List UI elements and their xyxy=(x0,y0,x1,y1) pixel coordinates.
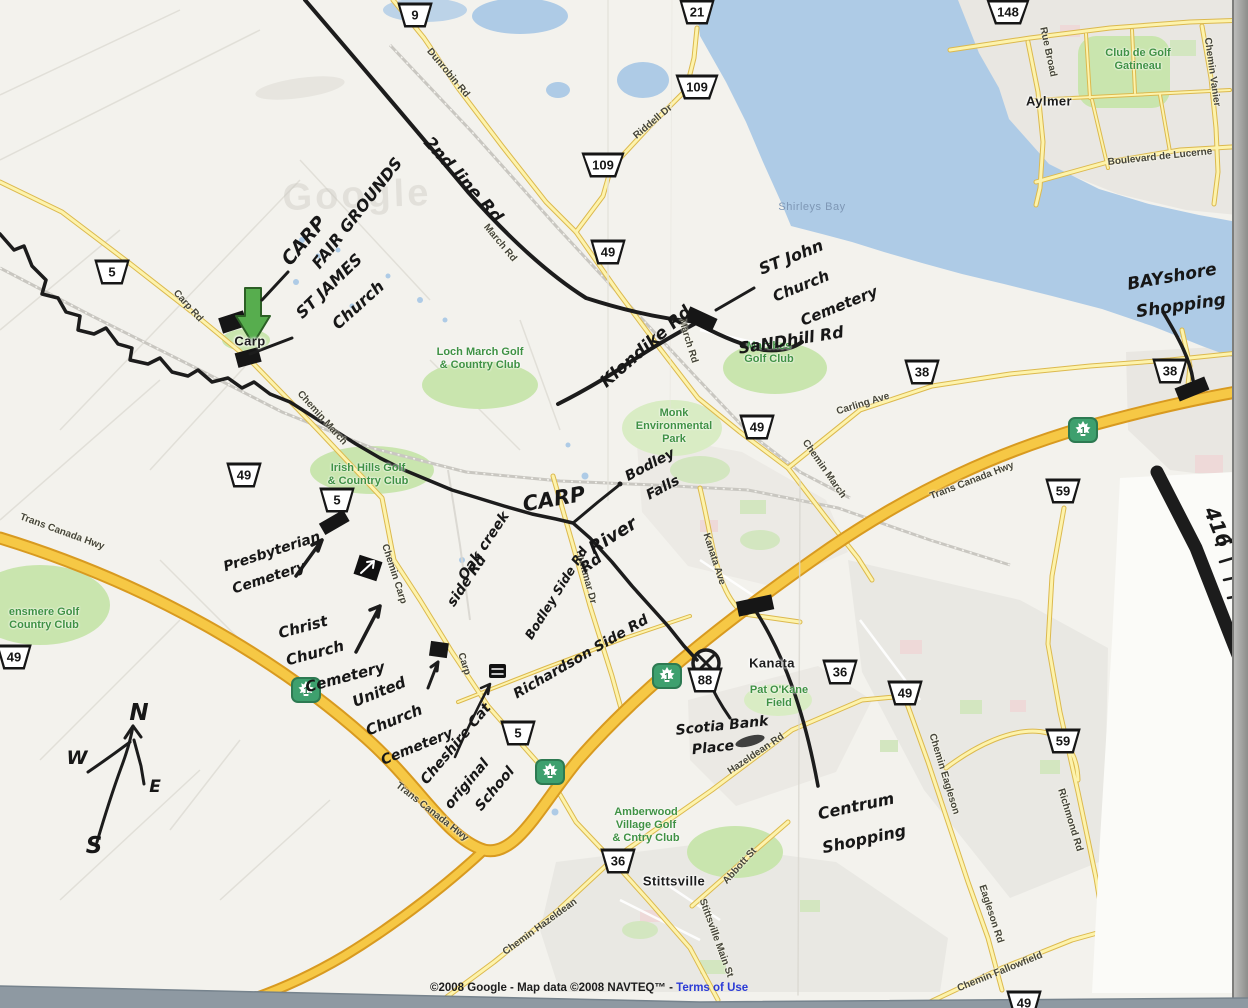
maple-leaf-icon: 1 xyxy=(1070,419,1096,441)
shield-number: 5 xyxy=(319,488,356,513)
road-label: Boulevard de Lucerne xyxy=(1107,146,1213,168)
handwritten-annotation: Place xyxy=(691,738,735,758)
route-shield-5: 5 xyxy=(500,721,537,746)
water-label: Shirleys Bay xyxy=(778,201,845,213)
route-shield-148: 148 xyxy=(986,0,1031,25)
handwritten-annotation: Shopping xyxy=(1135,290,1227,322)
road-label: Chemin Hazeldean xyxy=(501,896,579,957)
route-shield-49: 49 xyxy=(226,463,263,488)
marker-number: 1 xyxy=(547,768,553,779)
golf-park-label: Park xyxy=(662,433,686,445)
route-shield-5: 5 xyxy=(94,260,131,285)
shield-number: 49 xyxy=(887,681,924,706)
maple-leaf-icon: 1 xyxy=(537,761,563,783)
route-shield-109: 109 xyxy=(581,153,626,178)
handwritten-annotation: E xyxy=(149,777,161,797)
handwritten-annotation: CARP xyxy=(521,482,587,517)
route-shield-38: 38 xyxy=(904,360,941,385)
handwritten-annotation: N xyxy=(129,700,148,726)
trans-canada-route-marker: 1 xyxy=(535,759,565,785)
route-shield-9: 9 xyxy=(397,3,434,28)
route-shield-49: 49 xyxy=(887,681,924,706)
handwritten-annotation: Scotia Bank xyxy=(675,713,769,739)
road-label: Stittsville Main St xyxy=(697,897,736,979)
road-label: Hazeldean Rd xyxy=(726,731,787,777)
maple-leaf-icon: 1 xyxy=(654,665,680,687)
road-label: Chemin Carp xyxy=(379,543,409,606)
road-label: March Rd xyxy=(481,222,519,264)
shield-number: 36 xyxy=(822,660,859,685)
golf-park-label: Loch March Golf xyxy=(437,346,524,358)
road-label: Chemin March xyxy=(800,438,849,501)
route-shield-59: 59 xyxy=(1045,479,1082,504)
shield-number: 49 xyxy=(739,415,776,440)
handwritten-annotation: Church xyxy=(363,701,425,740)
town-label: Aylmer xyxy=(1026,94,1072,109)
road-label: Chemin Vanier xyxy=(1202,37,1223,107)
shield-number: 36 xyxy=(600,849,637,874)
golf-park-label: ensmere Golf xyxy=(9,606,79,618)
golf-park-label: Irish Hills Golf xyxy=(331,462,406,474)
handwritten-annotation: Church xyxy=(770,267,832,306)
handwritten-annotation: 2nd line Rd xyxy=(419,133,506,227)
route-shield-49: 49 xyxy=(0,645,33,670)
trans-canada-route-marker: 1 xyxy=(652,663,682,689)
shield-number: 49 xyxy=(1006,991,1043,1008)
shield-number: 109 xyxy=(675,75,720,100)
copyright-text: ©2008 Google - Map data ©2008 NAVTEQ™ - xyxy=(430,982,676,994)
shield-number: 88 xyxy=(687,668,724,693)
route-shield-109: 109 xyxy=(675,75,720,100)
marker-number: 1 xyxy=(1080,426,1086,437)
route-shield-49: 49 xyxy=(739,415,776,440)
route-shield-88: 88 xyxy=(687,668,724,693)
route-shield-49: 49 xyxy=(590,240,627,265)
shield-number: 148 xyxy=(986,0,1031,25)
shield-number: 38 xyxy=(1152,359,1189,384)
route-shield-49: 49 xyxy=(1006,991,1043,1008)
handwritten-annotation: BAYshore xyxy=(1126,259,1218,294)
road-label: Carp xyxy=(455,651,473,676)
road-label: Rue Broad xyxy=(1037,26,1058,78)
trans-canada-route-marker: 1 xyxy=(1068,417,1098,443)
golf-park-label: Amberwood xyxy=(614,806,678,818)
golf-park-label: Monk xyxy=(660,407,689,419)
scanned-map-page: Google ©2008 Google - Map data ©2008 NAV… xyxy=(0,0,1248,1008)
road-label: Chemin Eagleson xyxy=(926,732,961,815)
road-label: Chemin Fallowfield xyxy=(956,950,1045,994)
road-label: Trans Canada Hwy xyxy=(18,512,105,553)
copyright: ©2008 Google - Map data ©2008 NAVTEQ™ - … xyxy=(430,982,748,994)
golf-park-label: Village Golf xyxy=(616,819,676,831)
map-label-layer: Google ©2008 Google - Map data ©2008 NAV… xyxy=(0,0,1248,1008)
shield-number: 9 xyxy=(397,3,434,28)
town-label: Kanata xyxy=(749,656,795,671)
golf-park-label: Club de Golf xyxy=(1105,47,1170,59)
terms-of-use-link[interactable]: Terms of Use xyxy=(676,982,748,994)
route-shield-21: 21 xyxy=(679,0,716,25)
golf-park-label: Gatineau xyxy=(1114,60,1161,72)
town-label: Carp xyxy=(234,334,265,349)
road-label: Carp Rd xyxy=(171,288,205,324)
shield-number: 38 xyxy=(904,360,941,385)
golf-park-label: Field xyxy=(766,697,792,709)
town-label: Stittsville xyxy=(643,874,705,889)
route-shield-5: 5 xyxy=(319,488,356,513)
golf-park-label: Environmental xyxy=(636,420,712,432)
road-label: Abbott St xyxy=(721,846,759,887)
shield-number: 49 xyxy=(226,463,263,488)
route-shield-59: 59 xyxy=(1045,729,1082,754)
handwritten-annotation: Klondike Rd xyxy=(596,302,695,392)
handwritten-annotation: W xyxy=(67,747,88,769)
shield-number: 49 xyxy=(590,240,627,265)
shield-number: 59 xyxy=(1045,479,1082,504)
golf-park-label: Pat O'Kane xyxy=(750,684,808,696)
route-shield-36: 36 xyxy=(822,660,859,685)
handwritten-annotation: Christ xyxy=(276,612,329,642)
golf-park-label: & Cntry Club xyxy=(612,832,679,844)
golf-park-label: & Country Club xyxy=(440,359,521,371)
shield-number: 5 xyxy=(94,260,131,285)
handwritten-annotation: S xyxy=(86,833,103,859)
handwritten-annotation: 416 xyxy=(1199,503,1237,551)
golf-park-label: Country Club xyxy=(9,619,79,631)
road-label: Dunrobin Rd xyxy=(424,46,471,99)
handwritten-annotation: Centrum xyxy=(816,789,896,824)
road-label: Kanata Ave xyxy=(700,532,727,587)
golf-park-label: & Country Club xyxy=(328,475,409,487)
shield-number: 5 xyxy=(500,721,537,746)
shield-number: 21 xyxy=(679,0,716,25)
marker-number: 1 xyxy=(664,672,670,683)
route-shield-38: 38 xyxy=(1152,359,1189,384)
handwritten-annotation: Falls xyxy=(644,473,683,504)
handwritten-annotation: Bodley Side Rd xyxy=(522,544,591,642)
handwritten-annotation: Shopping xyxy=(820,821,907,857)
road-label: Riddell Dr xyxy=(631,103,674,142)
road-label: Chemin March xyxy=(295,389,349,448)
shield-number: 59 xyxy=(1045,729,1082,754)
road-label: Eagleson Rd xyxy=(976,883,1005,944)
shield-number: 49 xyxy=(0,645,33,670)
road-label: Richmond Rd xyxy=(1055,787,1085,852)
shield-number: 109 xyxy=(581,153,626,178)
road-label: Trans Canada Hwy xyxy=(929,460,1016,502)
road-label: Carling Ave xyxy=(835,391,891,418)
route-shield-36: 36 xyxy=(600,849,637,874)
handwritten-annotation: Church xyxy=(284,637,346,670)
